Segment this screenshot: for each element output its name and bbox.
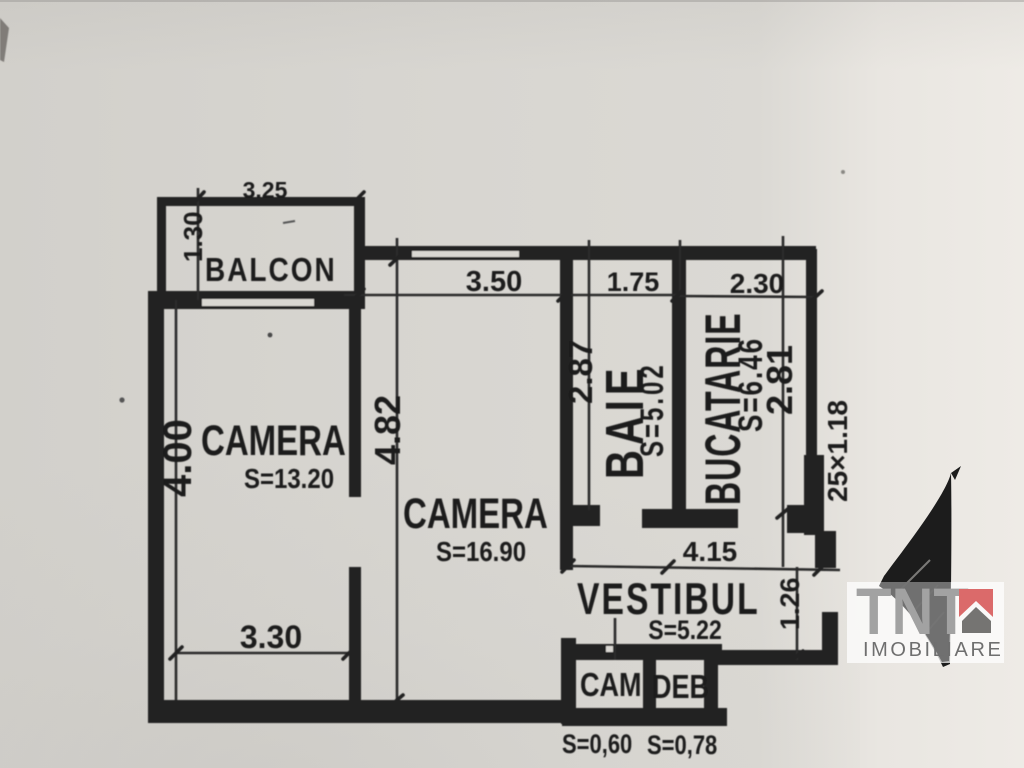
svg-text:S=13.20: S=13.20 xyxy=(244,465,334,495)
svg-text:4.00: 4.00 xyxy=(156,419,200,497)
svg-text:S=16.90: S=16.90 xyxy=(436,538,526,568)
svg-text:1.26: 1.26 xyxy=(775,577,805,630)
svg-text:1.75: 1.75 xyxy=(607,267,660,297)
svg-text:S=0,78: S=0,78 xyxy=(647,731,717,760)
svg-text:S=5.02: S=5.02 xyxy=(635,362,671,457)
svg-text:BALCON: BALCON xyxy=(205,251,337,289)
svg-text:4.82: 4.82 xyxy=(367,395,408,465)
svg-text:S=5.22: S=5.22 xyxy=(648,617,721,646)
svg-text:3.25: 3.25 xyxy=(243,177,288,203)
svg-text:CAMERA: CAMERA xyxy=(201,417,346,465)
svg-text:2.87: 2.87 xyxy=(562,340,599,404)
svg-text:2.30: 2.30 xyxy=(730,268,785,299)
svg-text:S=0,60: S=0,60 xyxy=(562,730,632,759)
svg-text:TNT: TNT xyxy=(856,576,969,649)
svg-text:S=6.46: S=6.46 xyxy=(733,337,770,432)
svg-text:4.15: 4.15 xyxy=(683,536,738,567)
svg-text:3.30: 3.30 xyxy=(240,619,302,655)
svg-text:CAMERA: CAMERA xyxy=(403,490,548,538)
svg-text:25×1.18: 25×1.18 xyxy=(822,400,853,502)
svg-text:3.50: 3.50 xyxy=(466,266,522,298)
svg-text:IMOBILIARE: IMOBILIARE xyxy=(863,639,1003,661)
svg-text:1.30: 1.30 xyxy=(178,211,208,262)
svg-text:DEB: DEB xyxy=(652,668,709,706)
svg-text:CAM: CAM xyxy=(580,666,641,704)
